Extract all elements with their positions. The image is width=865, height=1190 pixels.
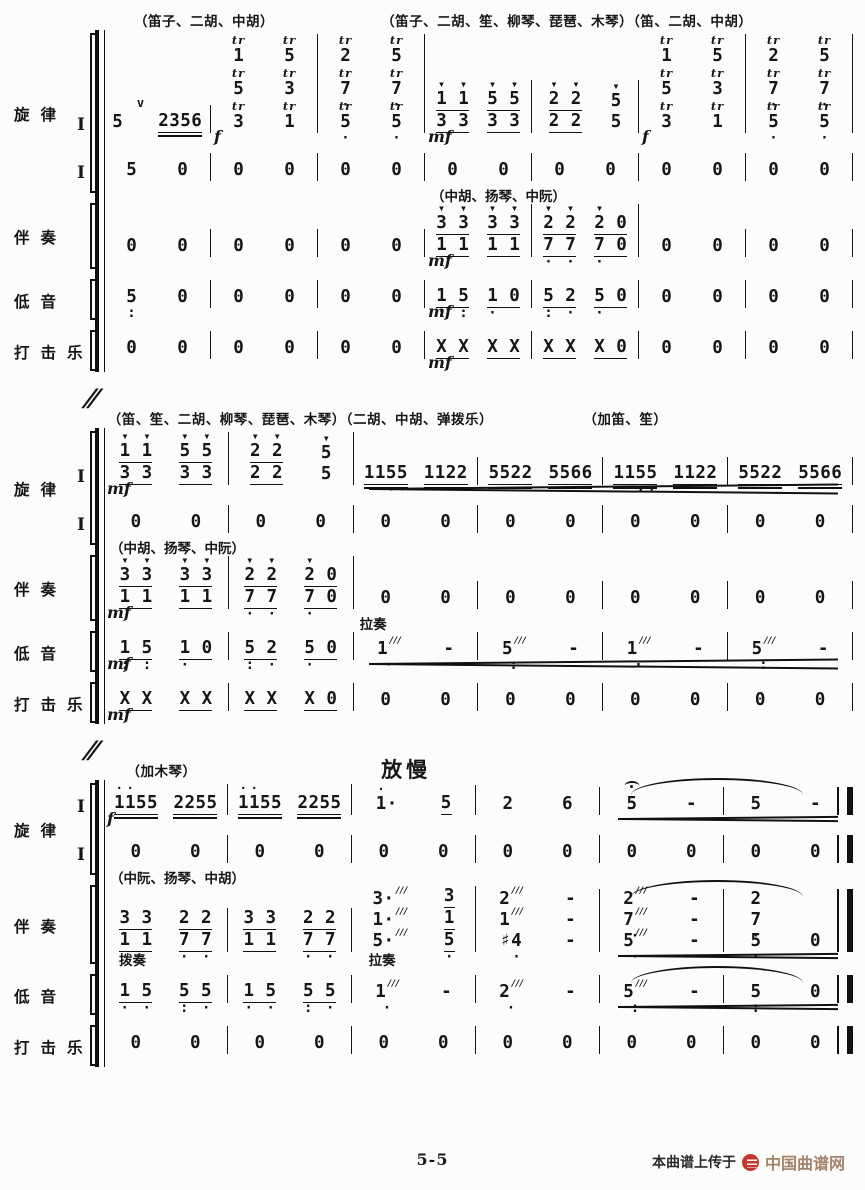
note: 5 — [750, 931, 761, 952]
glyph: 5 — [233, 79, 244, 100]
dynamic-mark: f — [642, 127, 649, 146]
glyph: 0 — [440, 588, 451, 609]
glyph: - — [810, 794, 821, 815]
beat-cell: 0 — [126, 236, 137, 257]
glyph: X — [509, 337, 520, 358]
measure: ·· 11552255 — [228, 784, 352, 815]
note: 0 — [314, 1033, 325, 1054]
note: 1155 — [114, 793, 158, 815]
note: 0 — [130, 512, 141, 533]
voice: 0 — [810, 982, 821, 1003]
glyph — [554, 213, 565, 234]
glyph: 5 — [444, 930, 455, 951]
voice: 5522 — [488, 463, 532, 485]
measure: 00 — [104, 505, 229, 533]
voice: 5 — [126, 160, 137, 181]
glyph: 1 — [119, 930, 130, 951]
note: 5 5 — [179, 981, 212, 1003]
beat-cell: 0 — [565, 588, 576, 609]
glyph — [315, 556, 326, 565]
note: 1/// — [627, 639, 651, 660]
glyph: 0 — [130, 842, 141, 863]
glyph — [447, 80, 458, 89]
glyph: · — [125, 784, 136, 793]
glyph: 2 — [565, 213, 576, 234]
measures: 1 5· ·5 5: ·1 5· ·5 5: ·1///·-2///·-5///… — [104, 975, 853, 1003]
glyph: 7 — [201, 930, 212, 951]
instrument-annotation: （笛子、二胡、笙、柳琴、琵琶、木琴）（笛、二胡、中胡） — [381, 10, 752, 30]
note: 0 — [314, 842, 325, 863]
voice: 5522 — [738, 463, 782, 485]
beat-cell: 0 — [565, 690, 576, 711]
beat-cell: 2 — [502, 794, 513, 815]
note: 1 5 — [243, 981, 276, 1003]
glyph: 1 — [435, 463, 446, 484]
voice: 7 7· · — [179, 930, 212, 952]
note: 0 — [438, 842, 449, 863]
glyph: 1 — [141, 587, 152, 608]
voice: 1 0· — [179, 638, 212, 660]
beat-cell: 0 — [750, 842, 761, 863]
glyph — [261, 432, 272, 441]
measure: 00 — [352, 1026, 476, 1054]
beat-cell: 5566 — [548, 463, 592, 485]
voice: 2356 — [158, 111, 202, 133]
note: 5522 — [488, 463, 532, 485]
glyph: 0 — [440, 690, 451, 711]
glyph — [130, 441, 141, 462]
voice: ▾ ▾3 3 — [179, 556, 212, 587]
measure: 00 — [318, 229, 425, 257]
beat-cell: 0 — [233, 287, 244, 308]
voice: ▾ ▾1 1 — [119, 432, 152, 463]
note: 1 1 — [436, 89, 469, 111]
note: 5 — [712, 46, 723, 67]
beat-cell: 0 — [340, 287, 351, 308]
voice: ♯4 · — [500, 931, 522, 952]
glyph — [605, 286, 616, 307]
note: 0 — [284, 236, 295, 257]
staff-row: 000000mfX XX XX XX 00000 — [104, 329, 853, 374]
glyph — [616, 204, 627, 213]
note: 0 — [630, 690, 641, 711]
glyph: 0 — [391, 236, 402, 257]
glyph: 2 — [706, 463, 717, 484]
glyph — [498, 337, 509, 358]
voice: ·· 1155 — [114, 784, 158, 815]
glyph: 5 — [141, 638, 152, 659]
beat-cell: X X — [244, 689, 277, 711]
beat-cell: 0 — [768, 160, 779, 181]
beat-cell: 0 — [565, 512, 576, 533]
glyph: X — [179, 689, 190, 710]
note: 0 — [233, 160, 244, 181]
voice: 0 — [712, 338, 723, 359]
technique-annotation: 拉奏 — [369, 949, 396, 969]
glyph — [130, 556, 141, 565]
tremolo-mark: /// — [387, 974, 399, 995]
glyph: · — [249, 784, 260, 793]
beat-cell: - — [693, 639, 704, 660]
crescendo-wedge — [618, 1001, 838, 1011]
beat-cell: 0 — [768, 338, 779, 359]
accent-line: ▾ ▾ — [436, 80, 469, 89]
beat-cell: 0 — [378, 1033, 389, 1054]
glyph: 5 — [340, 112, 351, 133]
glyph: 7 — [750, 910, 761, 931]
glyph — [255, 689, 266, 710]
staff-group-bracket — [90, 682, 99, 723]
voice: 0 — [712, 287, 723, 308]
glyph: 1 — [487, 286, 498, 307]
beat-cell: tr5tr7·tr5· — [818, 34, 831, 133]
beat-cell: 0 — [686, 842, 697, 863]
voice: tr5· — [339, 100, 352, 133]
note: 0 — [130, 842, 141, 863]
voice: 5 — [441, 793, 452, 815]
glyph — [326, 556, 337, 565]
glyph: 0 — [661, 287, 672, 308]
note: 2255 — [173, 793, 217, 815]
glyph: ▾ — [119, 556, 130, 565]
glyph: 1 — [375, 463, 386, 484]
beat-cell: 1///· — [375, 982, 399, 1003]
beat-cell: ▾ ▾3 31 1 — [436, 204, 469, 257]
measure: 00 — [639, 153, 746, 181]
measure: ▾ ▾2 27 7· ·▾ 2 07 0· — [532, 204, 639, 257]
note: 1 — [661, 46, 672, 67]
glyph: 2 — [266, 565, 277, 586]
voice: 0 — [284, 160, 295, 181]
glyph: 2 — [695, 463, 706, 484]
glyph: 1 — [613, 463, 624, 484]
wedge-line — [369, 663, 838, 669]
voice: 2255 — [297, 793, 341, 815]
note: - — [568, 639, 579, 660]
measure: 00 — [532, 153, 639, 181]
glyph — [130, 908, 141, 929]
voice: 0 — [810, 842, 821, 863]
glyph: X — [565, 337, 576, 358]
glyph: 0 — [686, 842, 697, 863]
staff-group: 伴奏000000mf▾ ▾3 31 1▾ ▾3 31 1▾ ▾2 27 7· ·… — [8, 202, 853, 272]
glyph: 0 — [630, 588, 641, 609]
beat-cell: 0 — [630, 690, 641, 711]
glyph — [190, 565, 201, 586]
voice: 0 — [233, 160, 244, 181]
trill-mark: tr — [818, 100, 831, 112]
note: 1122 — [424, 463, 468, 485]
beat-cell: 0 — [255, 512, 266, 533]
voice: tr7· — [339, 67, 352, 100]
glyph: 0 — [126, 236, 137, 257]
glyph: 0 — [326, 638, 337, 659]
glyph: 2 — [325, 908, 336, 929]
note: 5 — [391, 112, 402, 133]
staff-row: 3 31 12 27 7· ·3 31 12 27 7· ·3·///1·///… — [104, 884, 853, 967]
glyph: 5 — [623, 931, 634, 952]
voice: · 1· — [376, 785, 398, 815]
note: 0 — [750, 1033, 761, 1054]
voice: 0 — [690, 512, 701, 533]
note: 7 7 — [244, 587, 277, 609]
note: 7 7 — [179, 930, 212, 952]
measure: 2///7///·5///·--- — [600, 889, 724, 952]
staff-row: I5v2356ftr1tr5tr3tr5tr3tr1tr2tr7·tr5·tr5… — [104, 32, 853, 148]
glyph: 0 — [177, 287, 188, 308]
note: 1 1 — [487, 235, 520, 257]
glyph: 5 — [458, 286, 469, 307]
beat-cell: 0 — [233, 338, 244, 359]
glyph: 2 — [499, 889, 510, 910]
glyph: 0 — [233, 236, 244, 257]
beat-cell: 0 — [254, 1033, 265, 1054]
glyph: 0 — [505, 588, 516, 609]
note: 5/// — [502, 639, 526, 660]
measure: 00 — [724, 835, 853, 863]
measure: 1///·- — [603, 632, 728, 660]
measure: ▾ ▾2 22 2▾55 — [229, 432, 354, 485]
glyph — [254, 908, 265, 929]
staff-group: 旋律I5v2356ftr1tr5tr3tr5tr3tr1tr2tr7·tr5·t… — [8, 32, 853, 196]
glyph: ▾ — [509, 80, 520, 89]
voice: 3 3 — [179, 463, 212, 485]
glyph: 5 — [271, 793, 282, 814]
note: - — [565, 982, 576, 1003]
glyph: 2 — [565, 286, 576, 307]
voice: 0 — [391, 338, 402, 359]
glyph — [190, 463, 201, 484]
voice: 2 — [502, 794, 513, 815]
glyph: 3 — [141, 565, 152, 586]
measure: 00 — [639, 229, 746, 257]
glyph: 2 — [543, 213, 554, 234]
beat-cell: 0 — [755, 588, 766, 609]
tremolo-mark: /// — [511, 974, 523, 995]
note: 5/// — [623, 931, 647, 952]
glyph: 1 — [661, 46, 672, 67]
glyph: 5 — [397, 463, 408, 484]
staff-group: 低音1 5· ·5 5: ·1 5· ·5 5: ·1///·-2///·-5/… — [8, 973, 853, 1018]
glyph: 5 — [819, 112, 830, 133]
glyph: 0 — [438, 842, 449, 863]
beat-cell: ▾ ▾3 31 1 — [487, 204, 520, 257]
voice: 0 — [565, 690, 576, 711]
staff-group: 伴奏3 31 12 27 7· ·3 31 12 27 7· ·3·///1·/… — [8, 884, 853, 967]
note: 7 0 — [594, 235, 627, 257]
measure: 00 — [600, 835, 724, 863]
glyph: 1 — [179, 587, 190, 608]
voice: 2 2 — [179, 908, 212, 930]
voice: 0 — [712, 236, 723, 257]
crescendo-wedge — [618, 950, 838, 960]
glyph: 0 — [326, 689, 337, 710]
glyph: 1 — [364, 463, 375, 484]
glyph: 1 — [458, 89, 469, 110]
voice: 5///: — [623, 982, 647, 1003]
glyph — [190, 689, 201, 710]
glyph: 7 — [543, 235, 554, 256]
glyph — [271, 784, 282, 793]
accent-line: ▾ ▾ — [179, 556, 212, 565]
staff-group-label: 旋律 — [14, 103, 67, 125]
tremolo-mark: /// — [639, 631, 651, 652]
staff-group: 伴奏mf▾ ▾3 31 1▾ ▾3 31 1▾ ▾2 27 7· ·▾ 2 07… — [8, 554, 853, 624]
beat-cell: - — [689, 982, 700, 1003]
voice: - — [686, 794, 697, 815]
caesura-mark: // — [83, 384, 100, 412]
glyph: 1 — [424, 463, 435, 484]
voice: 5///· — [623, 931, 647, 952]
glyph: 0 — [502, 842, 513, 863]
beat-cell: 0 — [661, 160, 672, 181]
glyph: 0 — [819, 160, 830, 181]
voice: 5///: — [751, 639, 775, 660]
note: 1155 — [613, 463, 657, 485]
glyph: 5 — [201, 441, 212, 462]
voice: ·· 1155 — [238, 784, 282, 815]
wedge-line — [369, 488, 838, 494]
voice: 0 — [391, 287, 402, 308]
glyph: 2 — [304, 565, 315, 586]
measure: tr2tr7·tr5·tr5tr7·tr5· — [746, 34, 853, 133]
glyph: 6 — [820, 463, 831, 484]
note: 0 — [505, 690, 516, 711]
glyph: - — [689, 982, 700, 1003]
measure: 2///1///♯4 ·--- — [476, 889, 600, 952]
voice: 1 0· — [487, 286, 520, 308]
glyph: 0 — [340, 338, 351, 359]
voice: ▾ ▾2 2 — [250, 432, 283, 463]
staff-group-bracket — [90, 33, 99, 193]
trill-mark: tr — [339, 100, 352, 112]
voice: 0 — [391, 160, 402, 181]
glyph: ▾ — [458, 80, 469, 89]
measure: 5v2356 — [104, 105, 211, 133]
measure: 3 31 12 27 7· · — [228, 908, 352, 952]
tremolo-mark: /// — [635, 902, 647, 923]
tremolo-mark: /// — [389, 631, 401, 652]
voice: 0 — [554, 160, 565, 181]
glyph: 0 — [284, 236, 295, 257]
voice: 1 5· · — [243, 981, 276, 1003]
glyph — [136, 784, 147, 793]
tremolo-mark: /// — [511, 881, 523, 902]
staff-row: mfX XX XX XX 000000000 — [104, 681, 853, 726]
measure: 1155 ··1122 — [603, 457, 728, 485]
measure: 26 — [476, 787, 600, 815]
note: 1· — [376, 794, 398, 815]
beat-cell: - — [568, 639, 579, 660]
beat-cell: 6 — [562, 794, 573, 815]
beat-cell: 5 2: · — [244, 638, 277, 660]
glyph: 0 — [565, 512, 576, 533]
glyph: 7 — [304, 587, 315, 608]
glyph — [560, 89, 571, 110]
staff-group-label: 打击乐 — [14, 1036, 94, 1058]
wedge-line — [618, 818, 838, 822]
beat-cell: 2356 — [158, 111, 202, 133]
voice: - — [568, 639, 579, 660]
glyph: 0 — [130, 512, 141, 533]
beat-cell: 0 — [190, 842, 201, 863]
glyph: ▾ — [436, 80, 447, 89]
beat-cell: 0 — [712, 338, 723, 359]
beat-cell: tr1tr5tr3 — [232, 34, 245, 133]
glyph: 3 — [436, 213, 447, 234]
beat-cell: 0 — [819, 287, 830, 308]
beat-cell: 1122 — [673, 463, 717, 485]
voice: - — [689, 982, 700, 1003]
beat-cell: 2 27 7· · — [303, 908, 336, 952]
measure: mfX XX X — [425, 331, 532, 359]
voice: tr3 — [711, 67, 724, 100]
voice: 0 — [750, 1033, 761, 1054]
glyph: 0 — [712, 236, 723, 257]
beat-cell: - — [565, 982, 576, 1003]
glyph: - — [689, 910, 700, 931]
glyph: 0 — [315, 512, 326, 533]
note: 0 — [340, 160, 351, 181]
measure: f·· 11552255 — [104, 784, 228, 815]
glyph: 0 — [562, 842, 573, 863]
voice: 0 — [565, 512, 576, 533]
note: 0 — [815, 690, 826, 711]
voice: 0 — [810, 931, 821, 952]
measure: 00 — [211, 153, 318, 181]
glyph: 2 — [158, 111, 169, 132]
glyph: 0 — [819, 338, 830, 359]
beat-cell: 2 27 7· · — [179, 908, 212, 952]
note: 0 — [380, 512, 391, 533]
glyph: 3 — [119, 565, 130, 586]
accent-line: ▾ — [304, 556, 337, 565]
beat-cell: 5522 — [488, 463, 532, 485]
glyph: X — [487, 337, 498, 358]
glyph: 0 — [554, 160, 565, 181]
note: X X — [543, 337, 576, 359]
beat-cell: ▾ ▾5 53 3 — [487, 80, 520, 133]
beat-cell: 0 — [562, 1033, 573, 1054]
beat-cell: 0 — [554, 160, 565, 181]
measures: 000000mfX XX XX XX 00000 — [104, 331, 853, 359]
glyph — [190, 908, 201, 929]
beat-cell: 0 — [690, 588, 701, 609]
voice: 0 — [438, 842, 449, 863]
measures: mf▾ ▾1 13 3▾ ▾5 53 3▾ ▾2 22 2▾551155 ··1… — [104, 432, 853, 485]
voice: 0 — [130, 512, 141, 533]
glyph: 3 — [661, 112, 672, 133]
glyph: 5 — [543, 286, 554, 307]
beat-cell: 0 — [284, 287, 295, 308]
beat-cell: 0 — [177, 236, 188, 257]
glyph: 2 — [266, 638, 277, 659]
beat-cell: 0 — [380, 512, 391, 533]
glyph: 0 — [438, 1033, 449, 1054]
voice: 2 2 — [303, 908, 336, 930]
note: - — [565, 910, 576, 931]
voice: - — [565, 931, 576, 952]
note: 5522 — [738, 463, 782, 485]
glyph: 2 — [308, 793, 319, 814]
note: 5 2 — [244, 638, 277, 660]
measure: 00 — [746, 153, 853, 181]
beat-cell: 5 0· — [594, 286, 627, 308]
glyph: 0 — [768, 236, 779, 257]
beat-cell: 5///: — [502, 639, 526, 660]
voice: 0 — [630, 512, 641, 533]
voice: tr1 — [232, 34, 245, 67]
